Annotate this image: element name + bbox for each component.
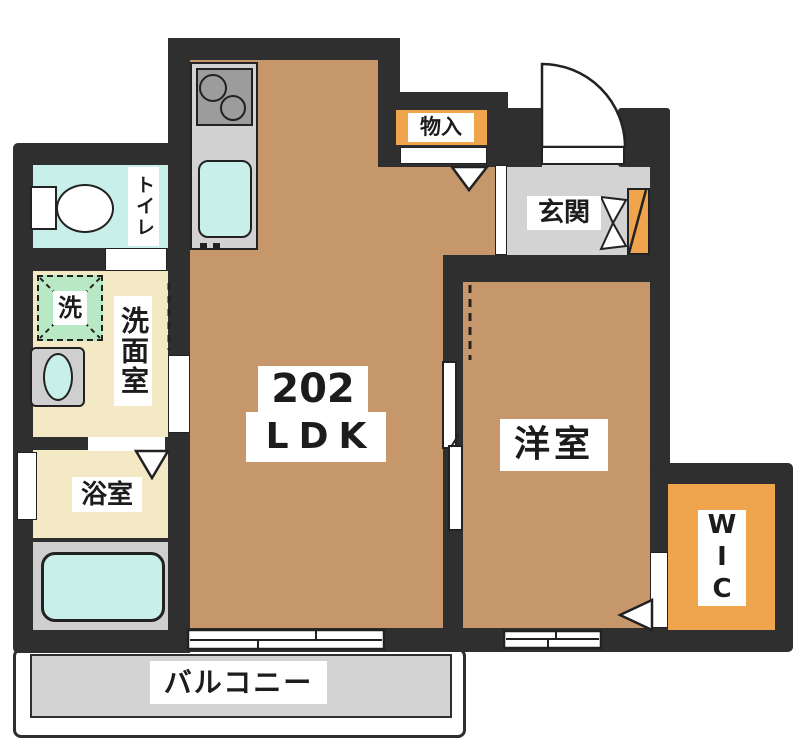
wic-label: WIC: [698, 510, 746, 606]
kitchen-sink-icon: [198, 160, 252, 238]
vanity-sink-icon: [43, 353, 73, 401]
storage-label: 物入: [408, 113, 474, 142]
entrance-right-wall: [618, 108, 670, 167]
bathroom-label: 浴室: [72, 477, 142, 512]
entrance-hall-door-gap: [495, 165, 507, 255]
ldk-western-divider-wall: [443, 258, 463, 632]
unit-number-label: 202: [258, 366, 368, 412]
entrance-label: 玄関: [527, 196, 601, 230]
toilet-door-gap: [105, 248, 167, 271]
kitchen-left-wall: [168, 38, 190, 653]
top-wall: [168, 38, 400, 60]
washroom-label: 洗面室: [114, 296, 152, 406]
storage-shelf: [400, 147, 487, 164]
shoe-cabinet-icon: [627, 188, 650, 255]
unit-type-label: LDK: [246, 412, 386, 462]
bottom-wall: [168, 628, 670, 652]
toilet-label: トイレ: [128, 167, 159, 246]
western-room-label: 洋室: [500, 419, 608, 471]
bathroom-door-gap: [88, 437, 165, 451]
bathroom-window-icon: [17, 452, 37, 520]
washroom-door-gap: [168, 355, 190, 433]
entrance-door-arc-icon: [542, 64, 625, 164]
entrance-bottom-wall: [443, 255, 670, 282]
balcony-label: バルコニー: [150, 661, 327, 704]
toilet-bowl-icon: [56, 184, 114, 233]
toilet-tank-icon: [30, 186, 57, 230]
stove-burner-icon: [199, 74, 227, 102]
bathtub-icon: [41, 552, 165, 622]
stove-burner-icon: [220, 95, 246, 121]
washer-label: 洗: [53, 291, 87, 325]
entrance-left-wall: [503, 108, 542, 167]
wic-door-gap: [650, 552, 668, 628]
floor-plan: 202 LDK 物入 玄関 洋室 WIC トイレ 洗 洗面室 浴室 バルコニー: [0, 0, 800, 750]
